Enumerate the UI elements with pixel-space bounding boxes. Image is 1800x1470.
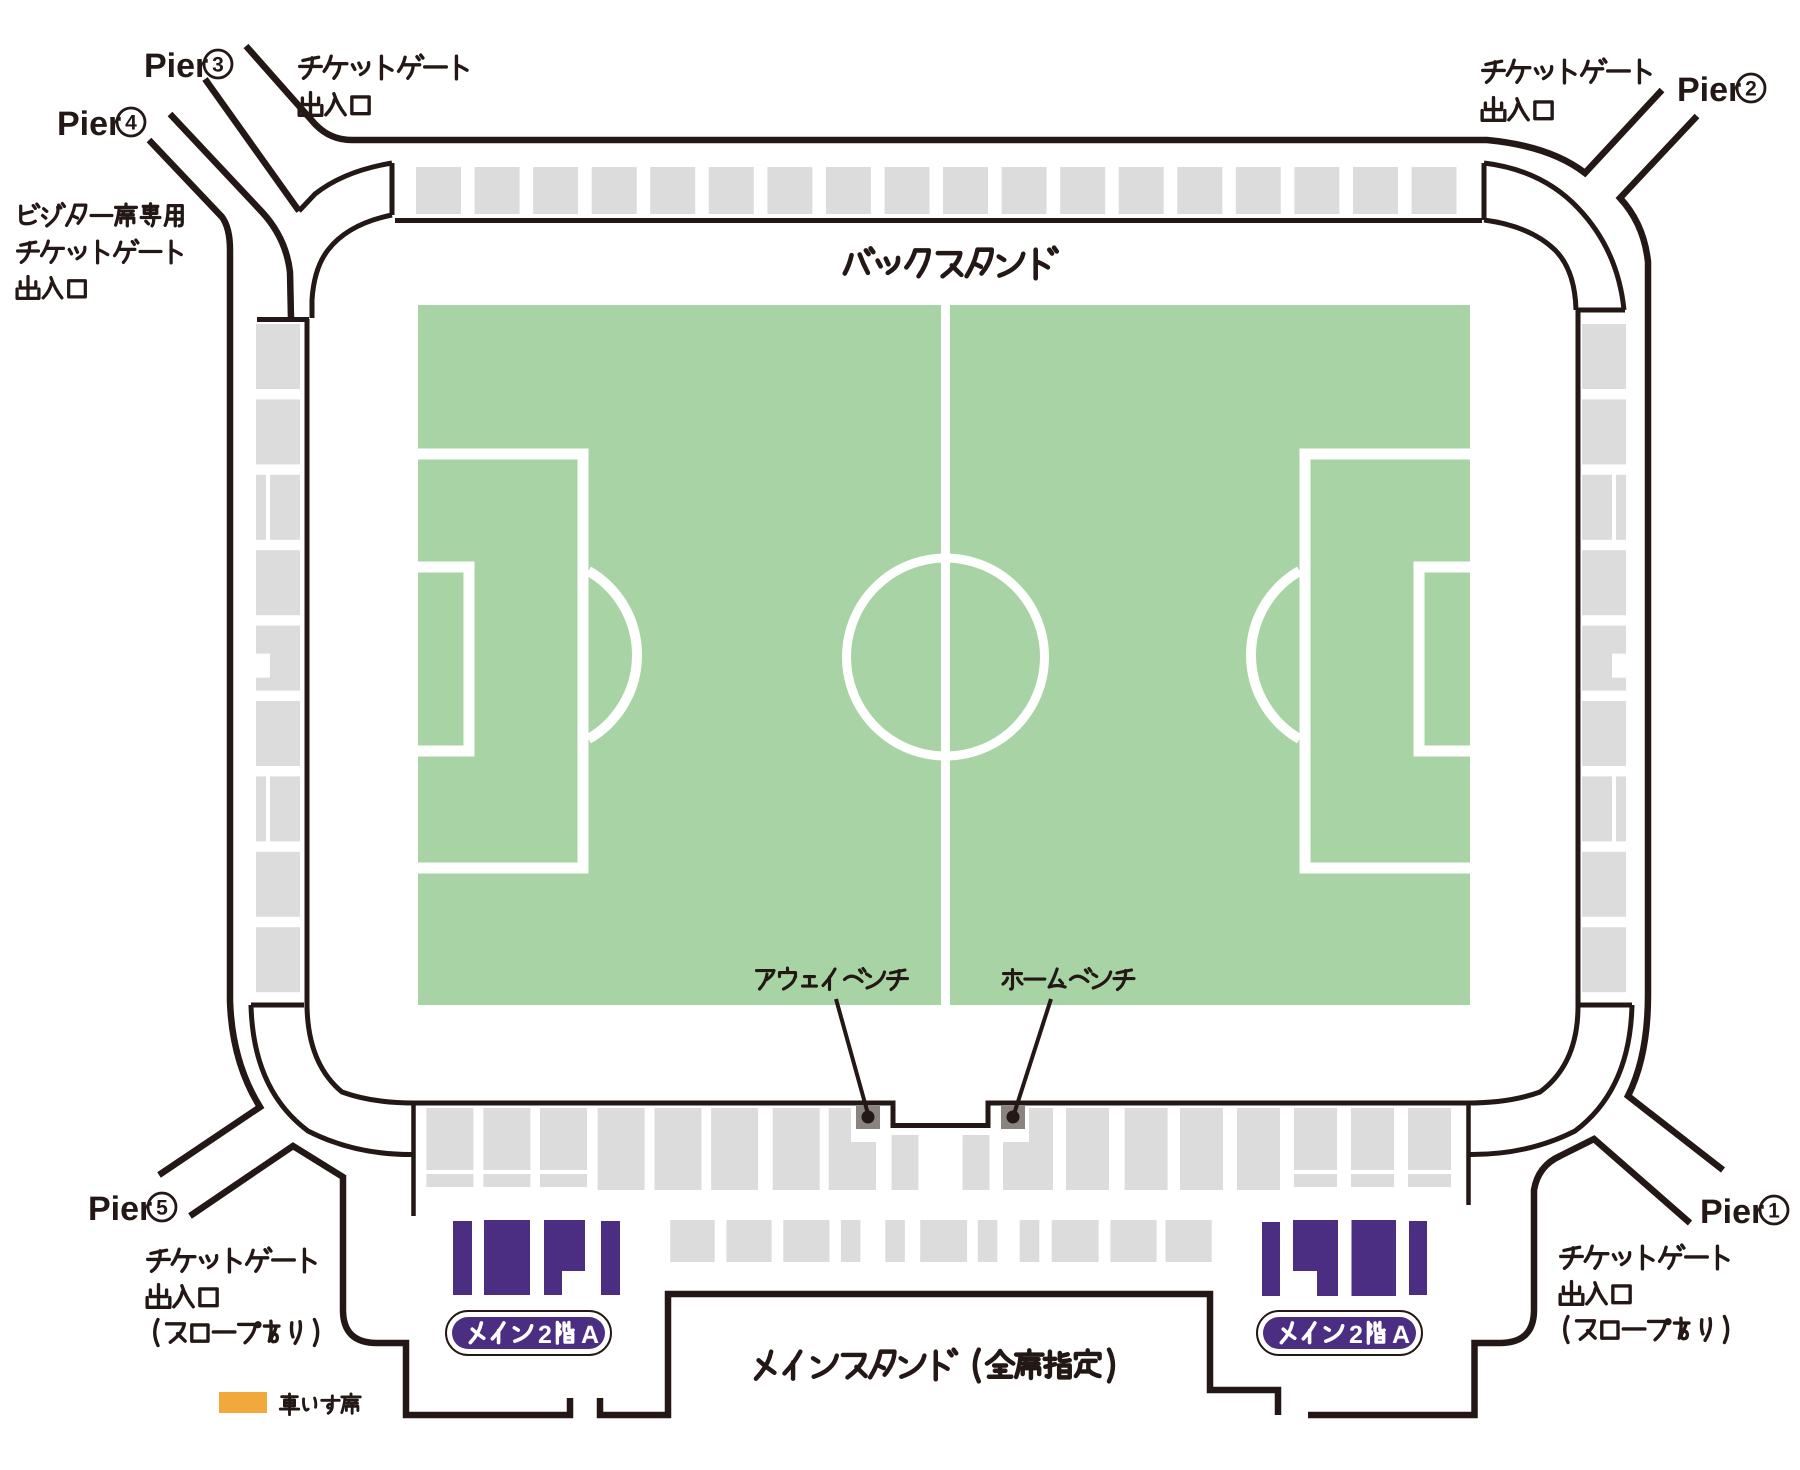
svg-text:Pier: Pier — [144, 47, 208, 85]
svg-text:3: 3 — [212, 54, 224, 77]
svg-text:A: A — [1392, 1321, 1410, 1349]
svg-text:A: A — [581, 1321, 599, 1349]
svg-text:Pier: Pier — [1677, 71, 1741, 109]
svg-text:5: 5 — [156, 1197, 168, 1220]
svg-text:Pier: Pier — [1700, 1193, 1764, 1231]
svg-text:1: 1 — [1768, 1200, 1780, 1223]
svg-text:Pier: Pier — [88, 1190, 152, 1228]
svg-text:4: 4 — [125, 112, 137, 135]
svg-text:2: 2 — [1349, 1321, 1363, 1349]
svg-text:Pier: Pier — [57, 105, 121, 143]
svg-text:2: 2 — [538, 1321, 552, 1349]
svg-text:2: 2 — [1745, 78, 1757, 101]
